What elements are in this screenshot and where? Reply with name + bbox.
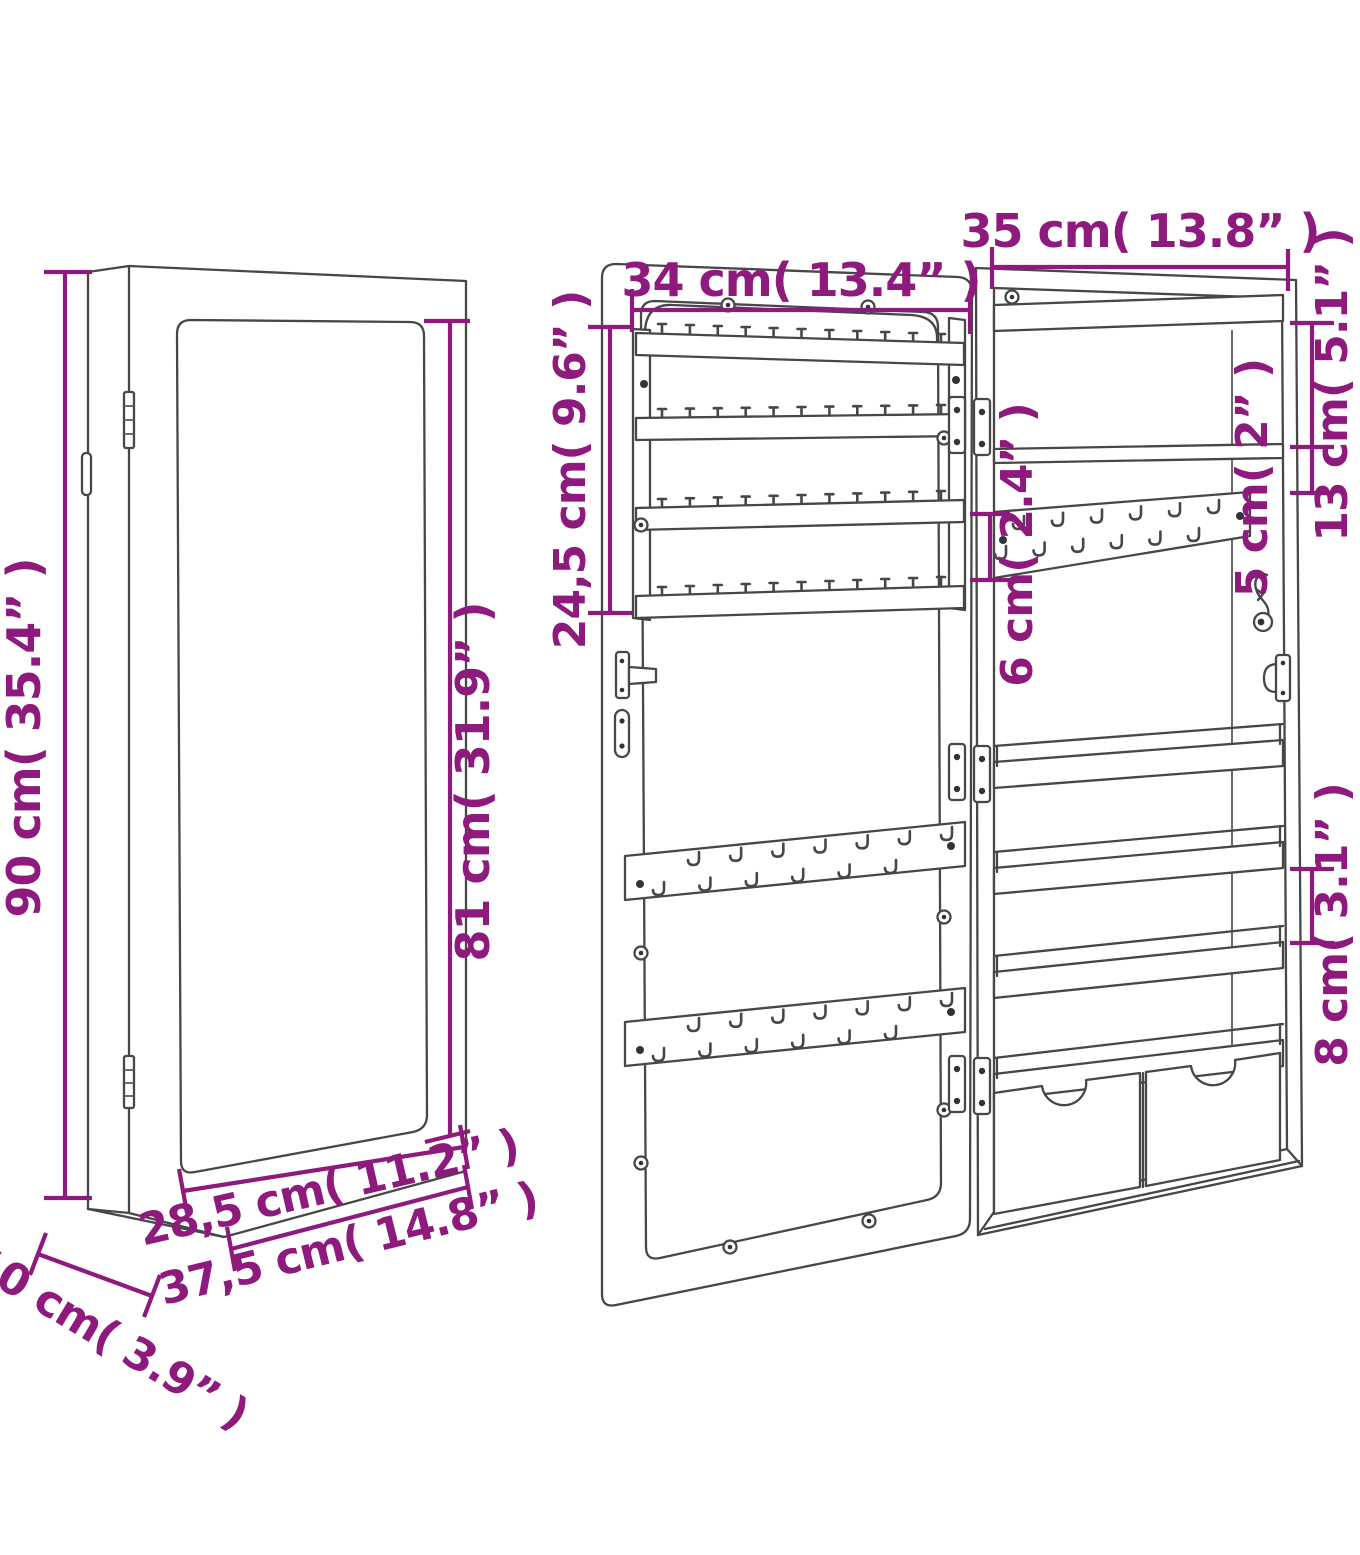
dim-upper-gap-label: 5 cm( 2” ) — [1227, 359, 1278, 597]
view-door-inside — [602, 264, 972, 1306]
earring-bar-2 — [636, 414, 964, 440]
side-hinge-top — [124, 392, 134, 448]
dim-door-width-label: 34 cm( 13.4” ) — [621, 253, 980, 307]
side-knob — [82, 453, 91, 495]
dimension-diagram: 90 cm( 35.4” ) 81 cm( 31.9” ) 28,5 cm( 1… — [0, 0, 1360, 1555]
dim-cabinet-height-label: 90 cm( 35.4” ) — [0, 558, 51, 917]
dim-shelf-gap-label: 8 cm( 3.1” ) — [1307, 783, 1358, 1067]
dim-mirror-height-label: 81 cm( 31.9” ) — [446, 602, 500, 961]
mirror — [177, 320, 427, 1173]
view-closed-cabinet — [82, 266, 466, 1237]
dim-interior-width-label: 35 cm( 13.8” ) — [960, 204, 1319, 258]
rack-left-rail — [633, 329, 650, 620]
side-hinge-bottom — [124, 1056, 134, 1108]
dim-hook-rail-label: 6 cm( 2.4” ) — [992, 403, 1043, 687]
dim-rack-height-label: 24,5 cm( 9.6” ) — [545, 291, 596, 650]
